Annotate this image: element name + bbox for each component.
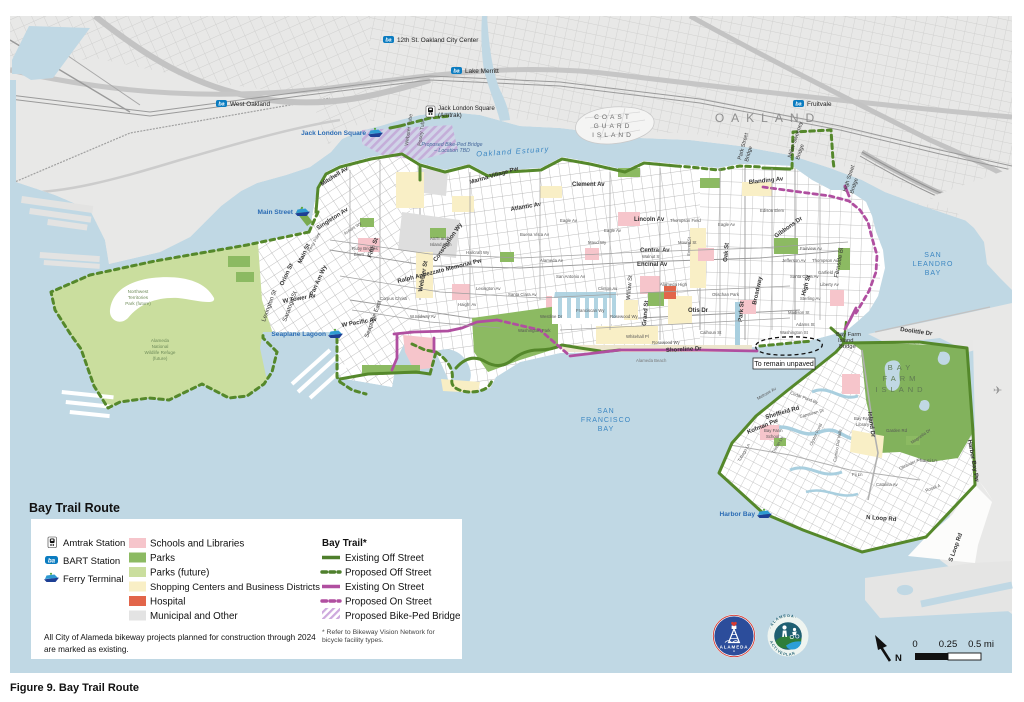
svg-text:FARM: FARM <box>883 374 920 383</box>
svg-text:are marked as existing.: are marked as existing. <box>44 645 129 654</box>
svg-text:Parks (future): Parks (future) <box>150 568 209 579</box>
svg-text:Buena Vista Av: Buena Vista Av <box>520 232 550 237</box>
svg-text:ISLAND: ISLAND <box>875 385 926 394</box>
svg-text:West Oakland: West Oakland <box>230 101 270 108</box>
svg-text:LEANDRO: LEANDRO <box>913 261 954 268</box>
svg-text:Island High: Island High <box>430 242 452 247</box>
svg-text:SAN: SAN <box>597 408 614 415</box>
svg-text:FRANCISCO: FRANCISCO <box>581 417 631 424</box>
svg-text:BAY: BAY <box>925 270 942 277</box>
svg-text:Jefferson Av: Jefferson Av <box>782 258 806 263</box>
svg-text:N: N <box>895 653 902 664</box>
svg-text:Existing Off Street: Existing Off Street <box>345 553 424 564</box>
svg-text:To remain unpaved: To remain unpaved <box>754 361 814 368</box>
svg-text:Eagle Av: Eagle Av <box>604 228 622 233</box>
svg-text:SAN: SAN <box>924 252 941 259</box>
svg-text:Catalina Av: Catalina Av <box>876 482 899 487</box>
svg-text:Mound St: Mound St <box>678 240 697 245</box>
svg-text:Liberty Av: Liberty Av <box>820 282 840 287</box>
svg-text:0: 0 <box>912 639 917 650</box>
svg-text:Bridge: Bridge <box>839 344 856 350</box>
svg-text:Schools and Libraries: Schools and Libraries <box>150 539 244 550</box>
svg-text:Madison St: Madison St <box>788 310 810 315</box>
svg-text:Maud Wy: Maud Wy <box>588 240 607 245</box>
svg-text:12th St. Oakland City Center: 12th St. Oakland City Center <box>397 37 479 44</box>
svg-text:ALAMEDA: ALAMEDA <box>720 644 749 649</box>
svg-text:Bay Trail*: Bay Trail* <box>322 538 367 549</box>
svg-text:✈: ✈ <box>993 385 1002 397</box>
svg-text:Sauci Ln: Sauci Ln <box>920 458 937 463</box>
svg-text:Ruby Bridges: Ruby Bridges <box>352 246 378 251</box>
svg-text:ba: ba <box>48 557 56 564</box>
svg-text:Elem: Elem <box>354 252 364 257</box>
svg-text:Main Street: Main Street <box>257 209 293 216</box>
svg-text:Walnut St: Walnut St <box>642 254 661 259</box>
svg-text:Alameda Av: Alameda Av <box>540 258 564 263</box>
svg-text:Alameda: Alameda <box>151 338 170 343</box>
svg-text:Rosewood Wy: Rosewood Wy <box>652 340 681 345</box>
svg-text:BAY: BAY <box>598 426 615 433</box>
svg-text:Northwest: Northwest <box>128 289 149 294</box>
svg-text:– Location TBD: – Location TBD <box>433 148 470 154</box>
svg-text:BAY: BAY <box>888 363 914 372</box>
svg-text:Fairview Av: Fairview Av <box>800 246 823 251</box>
svg-text:Eagle Av: Eagle Av <box>718 222 736 227</box>
svg-text:Garden Rd: Garden Rd <box>886 428 908 433</box>
svg-text:Washington Park: Washington Park <box>518 328 551 333</box>
svg-text:Fruitvale: Fruitvale <box>807 101 832 108</box>
svg-text:* Refer to Bikeway Vision Netw: * Refer to Bikeway Vision Network for <box>322 629 436 636</box>
svg-text:Jack London Square: Jack London Square <box>438 105 495 112</box>
svg-text:Adams St: Adams St <box>796 322 815 327</box>
svg-text:Library: Library <box>856 422 870 427</box>
svg-text:D: D <box>787 614 790 618</box>
svg-text:Municipal and Other: Municipal and Other <box>150 611 238 622</box>
svg-text:Seaplane Lagoon: Seaplane Lagoon <box>271 331 326 338</box>
svg-text:Lake Merritt: Lake Merritt <box>465 68 499 75</box>
svg-text:Proposed Off Street: Proposed Off Street <box>345 568 432 579</box>
svg-text:Bay Trail Route: Bay Trail Route <box>29 501 120 515</box>
svg-text:Alameda Beach: Alameda Beach <box>636 358 667 363</box>
svg-text:Park (future): Park (future) <box>125 301 151 306</box>
svg-text:Washington St: Washington St <box>780 330 809 335</box>
svg-text:Corpus Christi: Corpus Christi <box>380 296 407 301</box>
svg-text:ba: ba <box>795 102 801 108</box>
svg-text:Clement Av: Clement Av <box>572 182 605 188</box>
svg-text:Garfield Av: Garfield Av <box>818 270 840 275</box>
svg-text:GUARD: GUARD <box>594 123 633 130</box>
svg-text:Otischan Park: Otischan Park <box>712 292 740 297</box>
svg-text:Encinal Av: Encinal Av <box>637 262 668 268</box>
svg-text:ba: ba <box>453 69 459 75</box>
svg-text:Sterling Av: Sterling Av <box>800 296 821 301</box>
svg-text:San Antonio Av: San Antonio Av <box>556 274 586 279</box>
svg-text:Shopping Centers and Business: Shopping Centers and Business Districts <box>150 581 320 592</box>
svg-text:0.25: 0.25 <box>939 639 958 650</box>
svg-text:COAST: COAST <box>594 114 632 121</box>
svg-text:BART Station: BART Station <box>63 556 120 567</box>
svg-text:Existing On Street: Existing On Street <box>345 582 424 593</box>
svg-text:ISLAND: ISLAND <box>592 132 634 139</box>
svg-text:Clinton Av: Clinton Av <box>598 286 618 291</box>
svg-text:National: National <box>152 344 169 349</box>
svg-text:Whitehall Pl: Whitehall Pl <box>626 334 649 339</box>
svg-text:Hallcraft Wy: Hallcraft Wy <box>466 250 490 255</box>
svg-text:Otis Dr: Otis Dr <box>688 308 709 314</box>
svg-text:Harbor Bay: Harbor Bay <box>719 511 755 518</box>
svg-text:Eagle Av: Eagle Av <box>560 218 578 223</box>
svg-text:School: School <box>766 434 779 439</box>
svg-text:Proposed On Street: Proposed On Street <box>345 597 432 608</box>
svg-text:Calhoun St: Calhoun St <box>700 330 722 335</box>
svg-text:Haight Av: Haight Av <box>458 302 477 307</box>
svg-text:(Amtrak): (Amtrak) <box>438 112 462 119</box>
svg-text:Rosewood Wy: Rosewood Wy <box>610 314 639 319</box>
svg-text:Bay Farm: Bay Farm <box>764 428 783 433</box>
svg-text:0.5 mi: 0.5 mi <box>968 639 994 650</box>
svg-text:Jack London Square: Jack London Square <box>301 130 366 137</box>
svg-text:Franciscan Wy: Franciscan Wy <box>576 308 605 313</box>
svg-text:Ferry Terminal: Ferry Terminal <box>63 574 124 585</box>
svg-text:Thompson Av: Thompson Av <box>812 258 839 263</box>
svg-text:Territories: Territories <box>128 295 149 300</box>
svg-text:Santa Clara Av: Santa Clara Av <box>790 274 819 279</box>
svg-text:Wildlife Refuge: Wildlife Refuge <box>145 350 176 355</box>
svg-text:Parks: Parks <box>150 553 175 564</box>
svg-text:OAKLAND: OAKLAND <box>715 111 821 125</box>
svg-text:Westline Dr: Westline Dr <box>540 314 563 319</box>
svg-text:ba: ba <box>218 102 224 108</box>
svg-text:Thompson Field: Thompson Field <box>670 218 701 223</box>
svg-text:Lexington Av: Lexington Av <box>476 286 501 291</box>
svg-text:Amtrak Station: Amtrak Station <box>63 538 125 549</box>
svg-text:Fij Ln: Fij Ln <box>852 472 863 477</box>
svg-text:Alameda High: Alameda High <box>660 282 688 287</box>
svg-text:W Midway Av: W Midway Av <box>410 314 437 319</box>
svg-text:(future): (future) <box>153 356 168 361</box>
svg-text:Hospital: Hospital <box>150 597 185 608</box>
svg-text:Bay Farm: Bay Farm <box>854 416 873 421</box>
svg-text:Proposed Bike-Ped Bridge: Proposed Bike-Ped Bridge <box>345 611 461 622</box>
svg-text:bicycle facility types.: bicycle facility types. <box>322 637 384 644</box>
svg-text:All City of Alameda bikeway pr: All City of Alameda bikeway projects pla… <box>44 633 316 642</box>
svg-text:ba: ba <box>385 38 391 44</box>
svg-text:ASTI and: ASTI and <box>430 236 449 241</box>
